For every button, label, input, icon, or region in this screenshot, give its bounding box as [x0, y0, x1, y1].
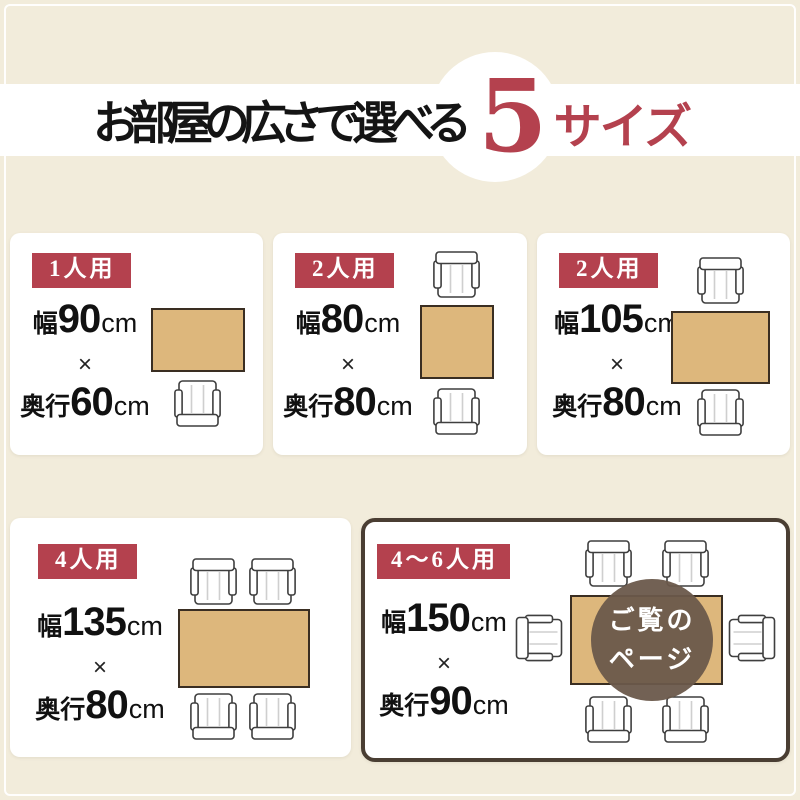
chair-icon [585, 540, 632, 590]
chair-icon [249, 558, 296, 608]
chair-icon [190, 558, 237, 608]
width-value: 90 [58, 297, 101, 341]
size-card-2person-105: 2人用 幅105cm × 奥行80cm [537, 233, 790, 455]
width-unit: cm [471, 607, 507, 637]
kotatsu-table-icon [671, 311, 770, 384]
depth-dimension: 奥行80cm [15, 683, 185, 736]
size-selection-panel: お部屋の広さで選べる 5 サイズ 1人用 幅90cm × 奥行60cm 2人用 … [0, 0, 800, 800]
times-separator: × [273, 350, 423, 380]
size-card-4to6person-current: 4〜6人用 幅150cm × 奥行90cm ご覧の ページ [361, 518, 790, 762]
depth-dimension: 奥行80cm [537, 380, 697, 433]
width-label: 幅 [37, 613, 62, 641]
title-suffix-text: サイズ [554, 87, 691, 157]
kotatsu-table-icon [178, 609, 310, 688]
width-label: 幅 [33, 310, 58, 338]
dimensions: 幅90cm × 奥行60cm [10, 297, 160, 433]
title-prefix-text: お部屋の広さで選べる [93, 87, 472, 153]
depth-unit: cm [114, 391, 150, 421]
capacity-badge: 1人用 [32, 253, 131, 288]
width-label: 幅 [554, 310, 579, 338]
times-separator: × [15, 653, 185, 683]
times-separator: × [10, 350, 160, 380]
depth-value: 80 [602, 380, 645, 424]
capacity-badge: 2人用 [559, 253, 658, 288]
depth-label: 奥行 [379, 692, 429, 720]
current-page-line1: ご覧の [608, 601, 695, 640]
width-dimension: 幅150cm [365, 596, 523, 649]
depth-dimension: 奥行80cm [273, 380, 423, 433]
depth-value: 80 [333, 380, 376, 424]
depth-label: 奥行 [35, 696, 85, 724]
chair-icon [174, 377, 221, 427]
depth-value: 90 [429, 679, 472, 723]
depth-label: 奥行 [20, 393, 70, 421]
chair-icon [697, 386, 744, 436]
times-separator: × [365, 649, 523, 679]
width-dimension: 幅135cm [15, 600, 185, 653]
kotatsu-table-icon [420, 305, 494, 379]
depth-label: 奥行 [552, 393, 602, 421]
width-unit: cm [364, 308, 400, 338]
dimensions: 幅80cm × 奥行80cm [273, 297, 423, 433]
current-page-line2: ページ [609, 640, 695, 679]
width-value: 80 [321, 297, 364, 341]
page-title: お部屋の広さで選べる 5 サイズ [0, 70, 800, 170]
chair-icon [662, 693, 709, 743]
kotatsu-table-icon [151, 308, 245, 372]
capacity-badge: 4人用 [38, 544, 137, 579]
chair-icon [726, 615, 776, 662]
depth-dimension: 奥行90cm [365, 679, 523, 732]
width-value: 150 [406, 596, 470, 640]
chair-icon [433, 251, 480, 301]
depth-dimension: 奥行60cm [10, 380, 160, 433]
chair-icon [516, 615, 566, 662]
depth-unit: cm [473, 690, 509, 720]
depth-value: 80 [85, 683, 128, 727]
depth-label: 奥行 [283, 393, 333, 421]
chair-icon [190, 690, 237, 740]
size-card-4person: 4人用 幅135cm × 奥行80cm [10, 518, 351, 757]
width-unit: cm [101, 308, 137, 338]
capacity-badge: 4〜6人用 [377, 544, 510, 579]
width-value: 135 [62, 600, 126, 644]
width-dimension: 幅80cm [273, 297, 423, 350]
width-label: 幅 [296, 310, 321, 338]
chair-icon [433, 385, 480, 435]
capacity-badge: 2人用 [295, 253, 394, 288]
depth-unit: cm [646, 391, 682, 421]
current-page-badge: ご覧の ページ [591, 579, 713, 701]
dimensions: 幅135cm × 奥行80cm [15, 600, 185, 736]
title-size-count: 5 [478, 66, 548, 166]
size-card-1person: 1人用 幅90cm × 奥行60cm [10, 233, 263, 455]
width-label: 幅 [381, 609, 406, 637]
width-dimension: 幅90cm [10, 297, 160, 350]
chair-icon [249, 690, 296, 740]
size-card-2person-80: 2人用 幅80cm × 奥行80cm [273, 233, 527, 455]
dimensions: 幅150cm × 奥行90cm [365, 596, 523, 732]
depth-unit: cm [377, 391, 413, 421]
depth-unit: cm [129, 694, 165, 724]
width-unit: cm [127, 611, 163, 641]
depth-value: 60 [70, 380, 113, 424]
chair-icon [697, 257, 744, 307]
chair-icon [585, 693, 632, 743]
width-value: 105 [579, 297, 643, 341]
